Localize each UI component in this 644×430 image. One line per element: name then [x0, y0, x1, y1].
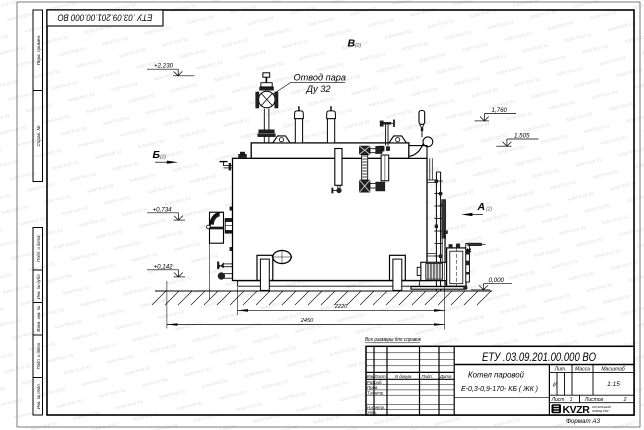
svg-text:Справ. №: Справ. №: [36, 126, 41, 147]
svg-text:Подп.: Подп.: [422, 374, 433, 379]
svg-text:Перв. примен.: Перв. примен.: [36, 35, 41, 66]
svg-text:(2): (2): [160, 155, 166, 161]
svg-text:Инв. № подл.: Инв. № подл.: [36, 383, 41, 409]
svg-text:Разраб.: Разраб.: [367, 380, 383, 385]
svg-text:Масштаб: Масштаб: [601, 366, 625, 372]
svg-text:N докум.: N докум.: [395, 374, 412, 379]
svg-text:Подп. и дата: Подп. и дата: [36, 342, 41, 369]
svg-text:ЕТУ .03.09.201.00.000 ВО: ЕТУ .03.09.201.00.000 ВО: [482, 350, 596, 364]
svg-text:2450: 2450: [300, 318, 314, 324]
svg-text:Подп. и дата: Подп. и дата: [36, 235, 41, 262]
svg-text:Лит.: Лит.: [554, 366, 567, 372]
svg-text:А: А: [477, 201, 486, 213]
svg-text:Утв.: Утв.: [367, 410, 377, 415]
svg-text:Формат А3: Формат А3: [566, 418, 600, 425]
svg-text:+2,230: +2,230: [154, 63, 174, 70]
svg-text:+0,142: +0,142: [154, 263, 174, 270]
svg-text:Е-0,3-0,9-170- КБ ( ЖК ): Е-0,3-0,9-170- КБ ( ЖК ): [461, 384, 539, 393]
svg-text:(2): (2): [486, 207, 492, 213]
svg-text:1:15: 1:15: [607, 381, 620, 388]
svg-text:Н.контр.: Н.контр.: [367, 405, 385, 410]
svg-text:Листов: Листов: [584, 397, 604, 403]
svg-text:Взам. инв. №: Взам. инв. №: [36, 305, 41, 331]
svg-text:Отвод пара: Отвод пара: [294, 73, 347, 83]
svg-text:Дата: Дата: [439, 374, 452, 379]
svg-text:Все размеры для справок: Все размеры для справок: [365, 337, 421, 343]
svg-text:Инв. № дубл.: Инв. № дубл.: [36, 273, 41, 299]
svg-text:2: 2: [623, 397, 627, 403]
svg-text:1: 1: [570, 397, 573, 403]
svg-text:Пров.: Пров.: [367, 385, 378, 390]
svg-text:+0,734: +0,734: [153, 206, 173, 213]
svg-text:2220: 2220: [334, 304, 348, 310]
svg-text:ЗАВОД РЗР: ЗАВОД РЗР: [592, 409, 609, 413]
svg-text:1,505: 1,505: [514, 133, 530, 140]
svg-text:(2): (2): [355, 43, 361, 49]
svg-text:Ду 32: Ду 32: [306, 84, 331, 94]
svg-text:Масса: Масса: [575, 366, 590, 372]
svg-text:Котел паровой: Котел паровой: [468, 371, 525, 380]
svg-text:ЕТУ .03.09.201.00.000 ВО: ЕТУ .03.09.201.00.000 ВО: [58, 13, 153, 23]
svg-text:Лист: Лист: [374, 374, 386, 379]
svg-text:KVZR: KVZR: [563, 404, 591, 416]
svg-text:И: И: [553, 382, 558, 389]
svg-text:1,760: 1,760: [492, 107, 508, 114]
svg-text:Т.контр.: Т.контр.: [367, 391, 384, 396]
svg-text:0,000: 0,000: [489, 277, 505, 284]
svg-text:Лист: Лист: [551, 397, 565, 403]
